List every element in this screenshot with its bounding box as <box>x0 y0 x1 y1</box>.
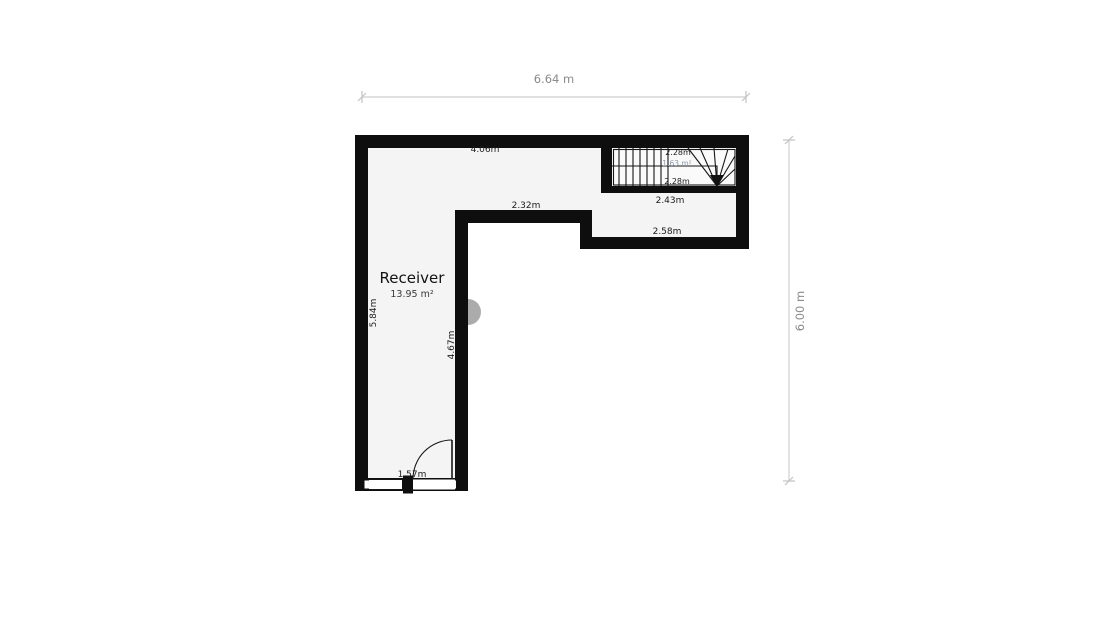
door-end-notch-left <box>365 481 370 489</box>
inner-wall-vertical-measure: 4.67m <box>447 331 457 360</box>
top-wall-measure: 4.06m <box>471 145 500 155</box>
dimension-right: 6.00 m <box>783 136 807 485</box>
entrance-width-measure: 1.57m <box>398 470 427 480</box>
room-area-label: 13.95 m² <box>390 289 433 300</box>
stair-area-label: 1.63 m² <box>662 159 691 168</box>
room-name-label: Receiver <box>380 269 446 287</box>
overall-width-label: 6.64 m <box>534 72 574 86</box>
door-end-notch-right <box>453 481 457 489</box>
left-wall-measure: 5.84m <box>369 299 379 328</box>
stair-upper-flight-label: 2.28m <box>665 148 691 157</box>
floor-plan-canvas: 6.64 m 6.00 m <box>0 0 1110 626</box>
floor-plan-svg: 6.64 m 6.00 m <box>0 0 1110 626</box>
door-threshold[interactable] <box>413 480 455 490</box>
door-side-panel[interactable] <box>369 480 402 490</box>
inner-wall-horizontal-measure: 2.32m <box>512 201 541 211</box>
wing-interior-measure: 2.58m <box>653 227 682 237</box>
stair-width-measure: 2.43m <box>656 196 685 206</box>
overall-height-label: 6.00 m <box>793 291 807 331</box>
stair-lower-flight-label: 2.28m <box>664 177 690 186</box>
dimension-top: 6.64 m <box>358 72 750 103</box>
stairs-unit[interactable]: 2.28m 1.63 m² 2.28m <box>612 148 736 187</box>
viewpoint-marker-right <box>468 299 481 325</box>
